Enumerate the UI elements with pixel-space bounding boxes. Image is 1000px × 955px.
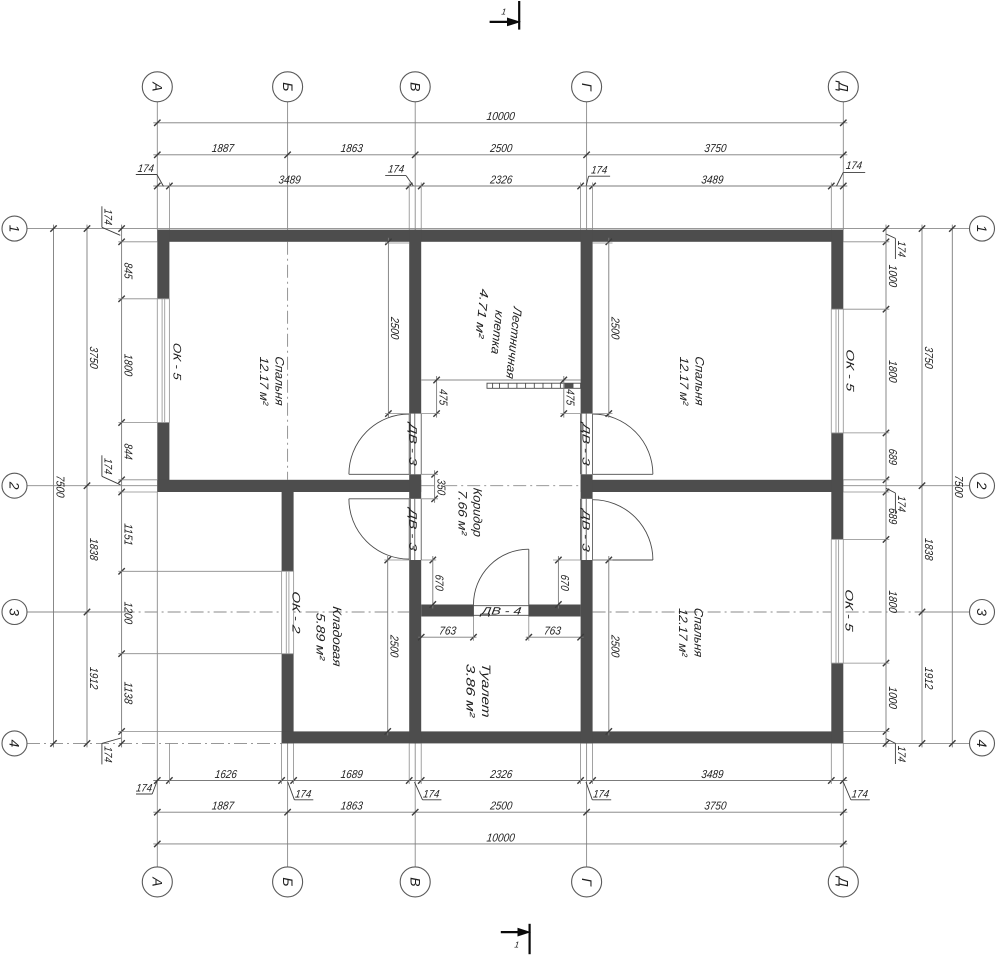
- svg-text:2500: 2500: [489, 801, 514, 813]
- svg-text:174: 174: [895, 495, 907, 512]
- svg-text:1138: 1138: [121, 681, 133, 705]
- svg-text:174: 174: [101, 746, 113, 763]
- svg-text:А: А: [150, 876, 166, 886]
- svg-text:174: 174: [590, 164, 607, 176]
- svg-text:1689: 1689: [340, 769, 364, 781]
- svg-text:763: 763: [543, 626, 562, 638]
- svg-text:4: 4: [7, 740, 23, 748]
- svg-text:2326: 2326: [489, 174, 514, 186]
- svg-text:174: 174: [101, 208, 113, 225]
- svg-text:174: 174: [423, 788, 440, 800]
- svg-text:3: 3: [7, 608, 23, 616]
- svg-text:174: 174: [137, 163, 154, 175]
- svg-text:1: 1: [974, 225, 990, 233]
- svg-text:7500: 7500: [952, 475, 964, 499]
- svg-text:1863: 1863: [340, 143, 364, 155]
- svg-text:ДВ - 3: ДВ - 3: [580, 507, 592, 552]
- svg-text:ДВ - 3: ДВ - 3: [580, 421, 592, 466]
- svg-text:1800: 1800: [121, 353, 133, 377]
- svg-text:1000: 1000: [886, 264, 898, 288]
- svg-text:3750: 3750: [704, 143, 728, 155]
- svg-text:689: 689: [886, 448, 898, 466]
- svg-text:3750: 3750: [922, 346, 934, 370]
- svg-text:12.17 м²: 12.17 м²: [677, 356, 691, 407]
- svg-text:174: 174: [135, 783, 152, 795]
- svg-text:670: 670: [558, 574, 570, 592]
- svg-text:Кладовая: Кладовая: [330, 606, 344, 668]
- svg-text:3750: 3750: [704, 801, 728, 813]
- svg-text:Б: Б: [280, 877, 296, 886]
- svg-text:ОК - 5: ОК - 5: [844, 349, 856, 394]
- svg-text:В: В: [407, 877, 423, 886]
- svg-text:174: 174: [895, 745, 907, 762]
- svg-text:10000: 10000: [486, 111, 516, 123]
- svg-text:2500: 2500: [489, 143, 514, 155]
- svg-text:3: 3: [974, 608, 990, 616]
- svg-text:12.17 м²: 12.17 м²: [257, 356, 271, 407]
- svg-text:3489: 3489: [701, 769, 725, 781]
- svg-text:670: 670: [433, 574, 445, 592]
- svg-text:ОК - 5: ОК - 5: [171, 342, 183, 381]
- svg-text:ДВ - 3: ДВ - 3: [406, 421, 418, 466]
- svg-text:ОК - 5: ОК - 5: [843, 589, 855, 634]
- svg-text:1800: 1800: [886, 590, 898, 614]
- svg-text:2500: 2500: [609, 315, 621, 340]
- svg-text:1200: 1200: [121, 601, 133, 625]
- svg-text:1887: 1887: [211, 143, 235, 155]
- svg-text:174: 174: [101, 457, 113, 474]
- svg-text:7500: 7500: [53, 475, 65, 499]
- svg-text:174: 174: [592, 788, 609, 800]
- svg-text:Коридор: Коридор: [471, 487, 485, 538]
- svg-text:845: 845: [121, 262, 133, 280]
- svg-text:А: А: [150, 81, 166, 91]
- svg-text:Туалет: Туалет: [479, 663, 493, 719]
- svg-text:174: 174: [895, 240, 907, 257]
- svg-text:174: 174: [851, 788, 868, 800]
- svg-text:1000: 1000: [886, 686, 898, 710]
- svg-text:1887: 1887: [211, 801, 235, 813]
- svg-text:2500: 2500: [388, 315, 400, 340]
- svg-text:12.17 м²: 12.17 м²: [676, 608, 690, 659]
- svg-text:2: 2: [974, 481, 990, 490]
- svg-text:10000: 10000: [486, 832, 516, 844]
- svg-text:2500: 2500: [609, 633, 621, 658]
- svg-text:Б: Б: [280, 82, 296, 91]
- svg-text:174: 174: [845, 160, 862, 172]
- svg-text:2326: 2326: [489, 769, 514, 781]
- svg-text:ДВ - 4: ДВ - 4: [479, 605, 522, 617]
- svg-text:3750: 3750: [87, 346, 99, 370]
- svg-text:1626: 1626: [214, 769, 238, 781]
- svg-text:3489: 3489: [278, 174, 302, 186]
- svg-text:1838: 1838: [922, 538, 934, 562]
- svg-text:1863: 1863: [340, 801, 364, 813]
- svg-text:2500: 2500: [388, 633, 400, 658]
- svg-text:174: 174: [294, 788, 311, 800]
- svg-text:5.89 м²: 5.89 м²: [314, 612, 328, 662]
- svg-text:7.66 м²: 7.66 м²: [456, 489, 470, 537]
- svg-text:475: 475: [564, 388, 576, 406]
- svg-text:1838: 1838: [87, 538, 99, 562]
- svg-text:Д: Д: [836, 80, 852, 92]
- svg-text:1912: 1912: [87, 666, 99, 690]
- svg-text:Спальня: Спальня: [693, 356, 707, 407]
- svg-text:ДВ - 3: ДВ - 3: [406, 507, 418, 552]
- svg-text:ОК - 2: ОК - 2: [290, 591, 302, 634]
- svg-text:2: 2: [7, 481, 23, 490]
- svg-text:350: 350: [434, 478, 446, 496]
- svg-text:В: В: [407, 82, 423, 91]
- svg-text:Спальня: Спальня: [273, 356, 287, 407]
- svg-text:3489: 3489: [701, 174, 725, 186]
- svg-text:763: 763: [438, 626, 457, 638]
- svg-text:4: 4: [974, 740, 990, 748]
- svg-text:1800: 1800: [886, 360, 898, 384]
- svg-text:475: 475: [436, 388, 448, 406]
- svg-text:174: 174: [387, 164, 404, 176]
- svg-text:Спальня: Спальня: [692, 607, 706, 658]
- svg-text:1151: 1151: [121, 523, 133, 546]
- svg-text:1: 1: [7, 225, 23, 233]
- svg-text:3.86 м²: 3.86 м²: [464, 663, 478, 719]
- svg-text:Д: Д: [836, 875, 852, 887]
- svg-text:1912: 1912: [922, 666, 934, 690]
- svg-text:844: 844: [121, 443, 133, 460]
